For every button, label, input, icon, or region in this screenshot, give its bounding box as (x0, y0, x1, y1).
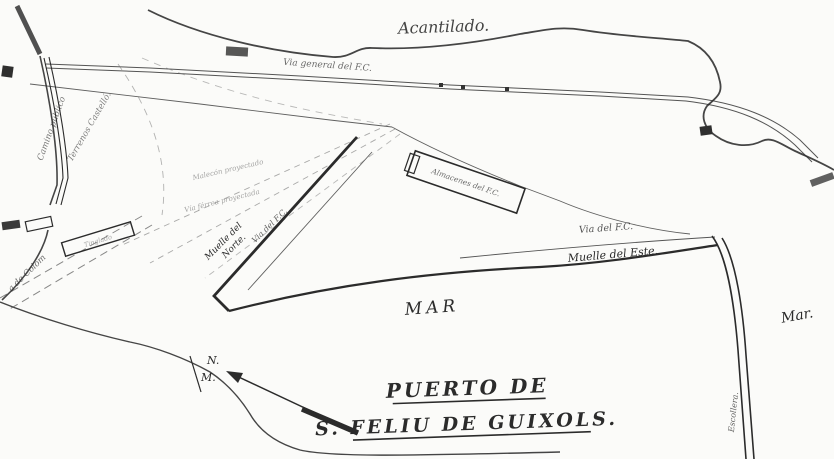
rail-post-1 (439, 83, 443, 87)
projected-line-2 (150, 129, 395, 263)
rail-building-hatched (226, 46, 248, 56)
label-via-fc-norte: Via del F.C. (250, 207, 289, 245)
compass-arrowhead (226, 371, 243, 383)
rail-post-3 (505, 87, 509, 91)
shore-structure-outline (25, 216, 53, 231)
railway-branch-to-junction (30, 84, 392, 127)
cove-building (700, 125, 713, 136)
harbor-plan-canvas: Acantilado. Via general del F.C. Camino … (0, 0, 834, 459)
projected-line-3 (205, 134, 400, 278)
left-edge-building (1, 65, 13, 77)
label-almacenes: Almacenes del F.C. (429, 166, 501, 198)
terrenos-boundary-arc (118, 64, 164, 215)
harbor-plan-svg: Acantilado. Via general del F.C. Camino … (0, 0, 834, 459)
label-mar-center: MAR (403, 296, 460, 320)
railway-main-rail2 (46, 68, 812, 162)
town-road-band (17, 6, 40, 54)
label-proyectado-2: Vía férrea proyectada (184, 188, 261, 214)
cliff-coastline (148, 10, 834, 170)
label-terrenos-castello: Terrenos Castelló. (65, 90, 114, 163)
label-via-general: Via general del F.C. (283, 58, 373, 74)
projected-line-1 (120, 124, 390, 246)
compass-declination-tick (190, 356, 201, 392)
rail-post-2 (461, 85, 465, 89)
map-title: PUERTO DE S. FELIU DE GUIXOLS. (313, 371, 618, 442)
label-compass-n: N. (206, 354, 219, 367)
shore-structure-hatched (2, 220, 21, 230)
label-mar-right: Mar. (779, 305, 815, 327)
label-escollera: Escollera. (727, 392, 740, 434)
railway-warehouse-axis (392, 127, 690, 234)
label-compass-m: M. (200, 371, 216, 384)
label-proyectado-1: Malecón proyectado (191, 158, 264, 182)
railway-main-rail1 (46, 64, 818, 158)
label-via-fc-este: Via del F.C. (579, 221, 634, 236)
label-colom: a de Colom (6, 253, 48, 294)
label-acantilado: Acantilado. (396, 16, 490, 38)
bridge-hatched-tick (810, 172, 834, 187)
